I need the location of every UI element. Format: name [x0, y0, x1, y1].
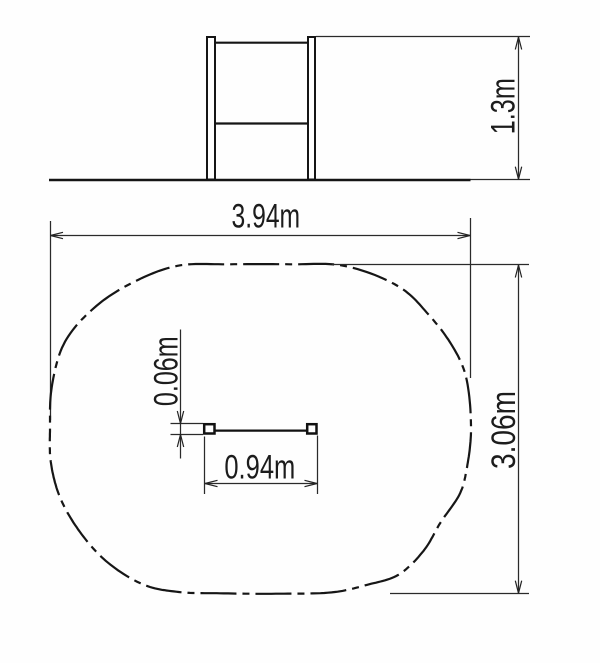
svg-text:3.06m: 3.06m [484, 391, 522, 469]
svg-text:0.06m: 0.06m [148, 336, 186, 406]
svg-text:0.94m: 0.94m [224, 449, 295, 486]
svg-text:1.3m: 1.3m [485, 78, 522, 134]
svg-text:3.94m: 3.94m [232, 198, 301, 236]
